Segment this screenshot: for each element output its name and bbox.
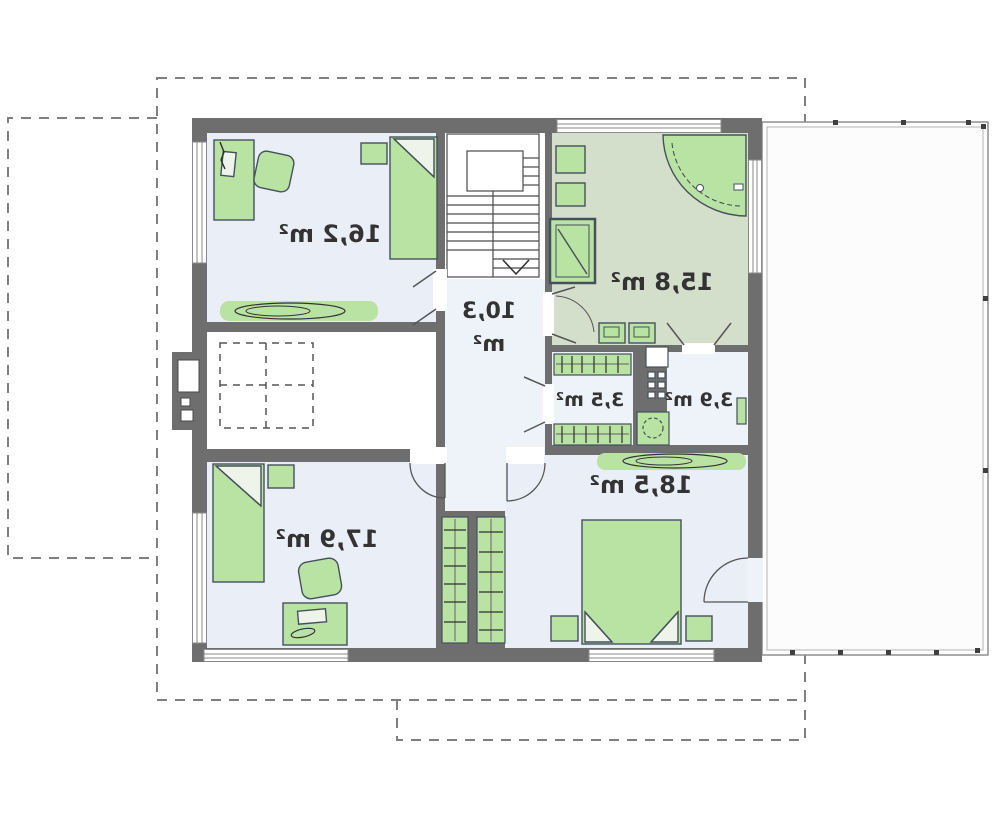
window-left-top [193, 142, 207, 263]
area-label-hall-line1: 10,3 [462, 299, 516, 324]
nightstand-icon [551, 616, 578, 641]
chair-icon [252, 150, 295, 194]
window-left-bottom [193, 513, 207, 643]
room-void-open-below [207, 332, 436, 449]
water-heater-icon [637, 412, 669, 445]
desk-icon [283, 603, 347, 645]
area-label-bedroom-top-left: 16,2 m² [278, 220, 381, 248]
hanging-rack-icon [554, 354, 631, 375]
roof-outline-bottom-extension [397, 700, 805, 740]
rug-icon [220, 301, 378, 321]
bed-icon [213, 464, 264, 582]
wardrobe-icon [477, 517, 505, 643]
nightstand-icon [268, 465, 294, 488]
window-top-bathroom [557, 120, 721, 133]
terrace [762, 120, 988, 655]
radiator-icon [737, 398, 746, 424]
desk-icon [214, 140, 254, 220]
wardrobe-icon [442, 517, 468, 643]
washer-icon [556, 146, 585, 173]
rug-icon [597, 453, 746, 470]
nightstand-icon [361, 143, 387, 164]
shower-icon [550, 219, 595, 283]
window-right-bathroom [749, 160, 762, 273]
window-bottom-left [204, 650, 348, 662]
hanging-rack-icon [554, 424, 631, 445]
chair-icon [297, 557, 343, 600]
area-label-wardrobe: 3,5 m² [556, 389, 624, 411]
nightstand-icon [686, 616, 712, 641]
area-label-utility: 3,9 m² [665, 389, 733, 411]
area-label-bedroom-bottom-right: 18,5 m² [589, 471, 692, 499]
area-label-hall-line2: m² [473, 332, 506, 357]
area-label-bathroom: 15,8 m² [610, 268, 713, 296]
cabinet-icon [556, 183, 585, 206]
double-bed-icon [582, 520, 681, 644]
area-label-bedroom-bottom-left: 17,9 m² [275, 525, 378, 553]
window-bottom-right [589, 650, 714, 662]
floor-plan-drawing: 16,2 m² 15,8 m² 10,3 m² 3,5 m² 3,9 m² 18… [0, 0, 1000, 821]
staircase [447, 134, 539, 277]
chimney [172, 352, 208, 430]
roof-outline-left-annex [8, 118, 157, 558]
bed-icon [390, 137, 437, 259]
terrace-deck [762, 122, 988, 655]
floor-plan-canvas: 16,2 m² 15,8 m² 10,3 m² 3,5 m² 3,9 m² 18… [0, 0, 1000, 821]
